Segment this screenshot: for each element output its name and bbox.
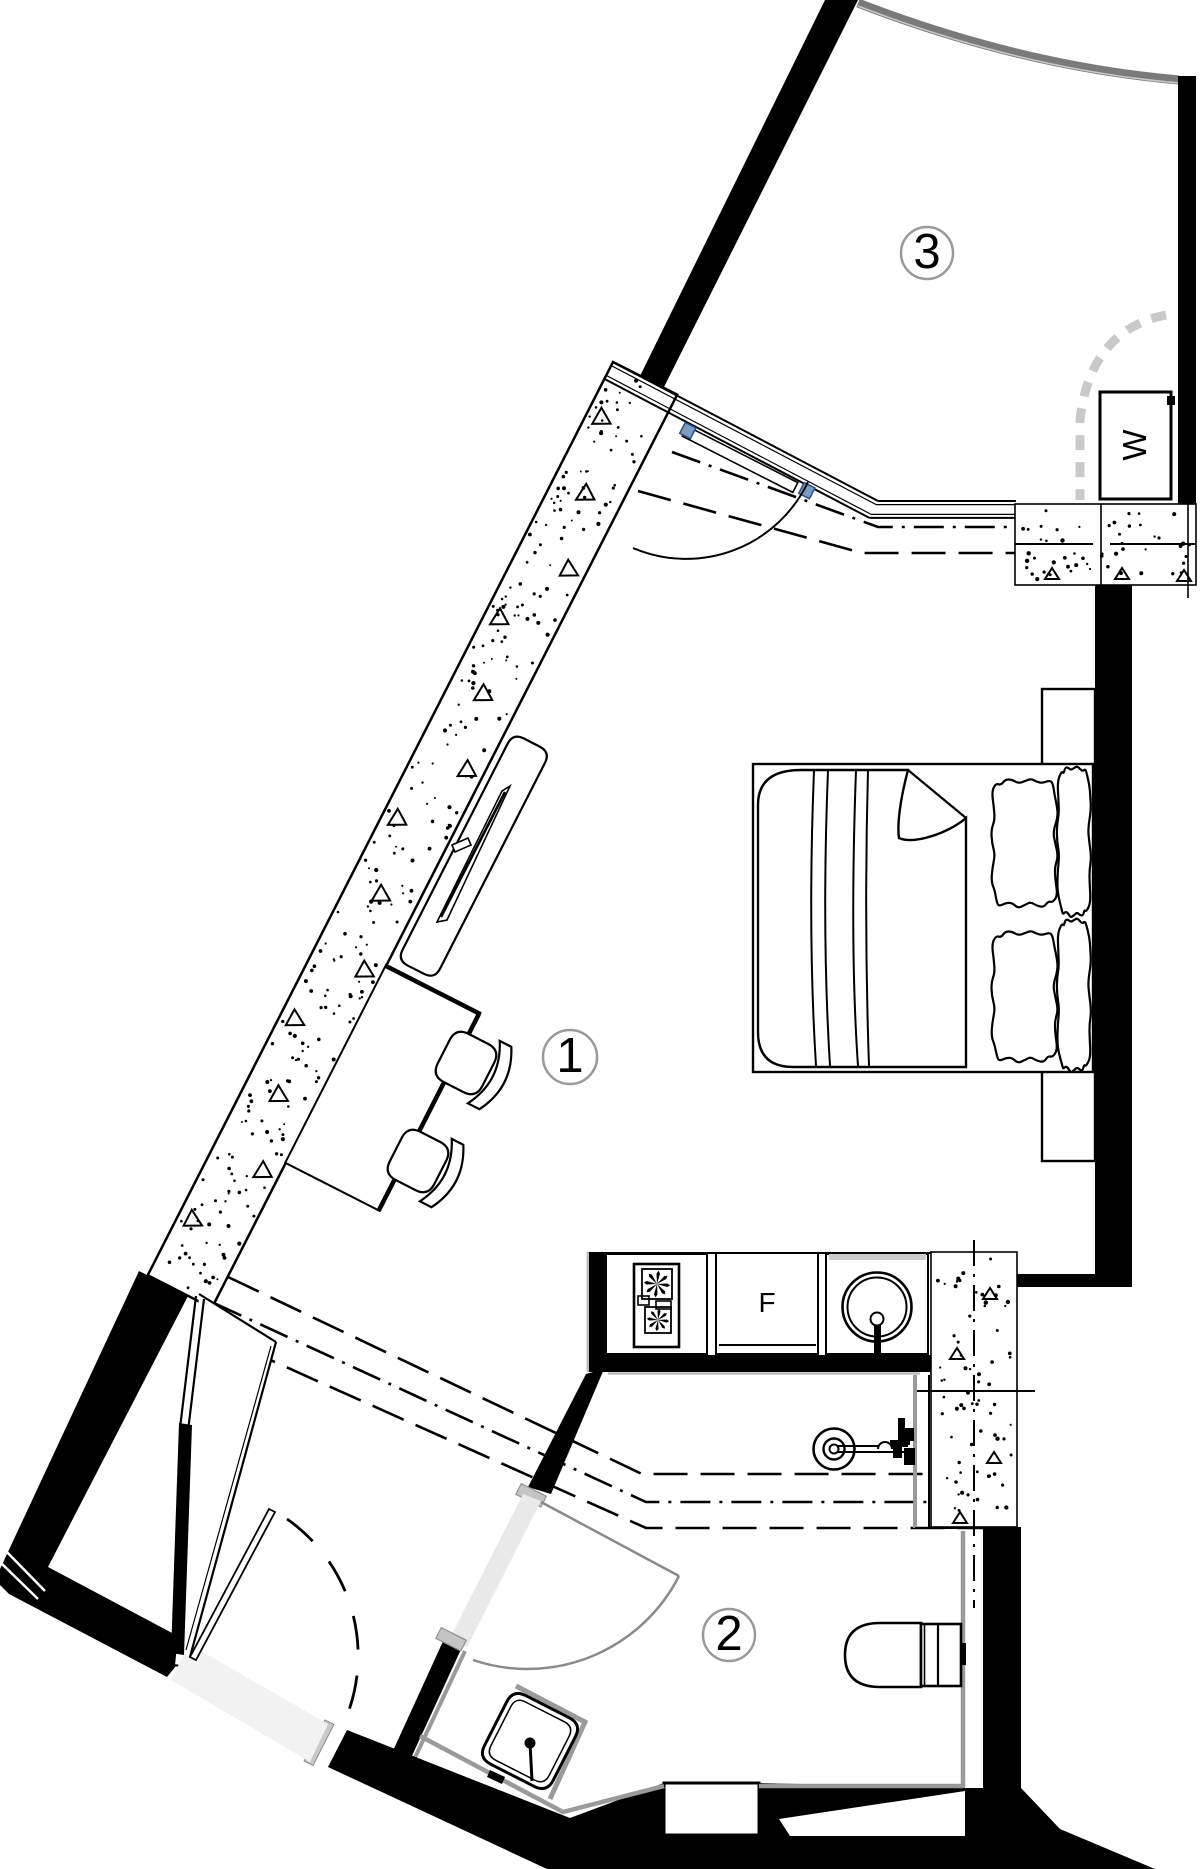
svg-text:3: 3 <box>913 225 940 279</box>
svg-text:F: F <box>758 1287 775 1318</box>
svg-text:W: W <box>1116 429 1153 461</box>
svg-text:2: 2 <box>715 1607 742 1661</box>
svg-text:1: 1 <box>556 1029 583 1083</box>
